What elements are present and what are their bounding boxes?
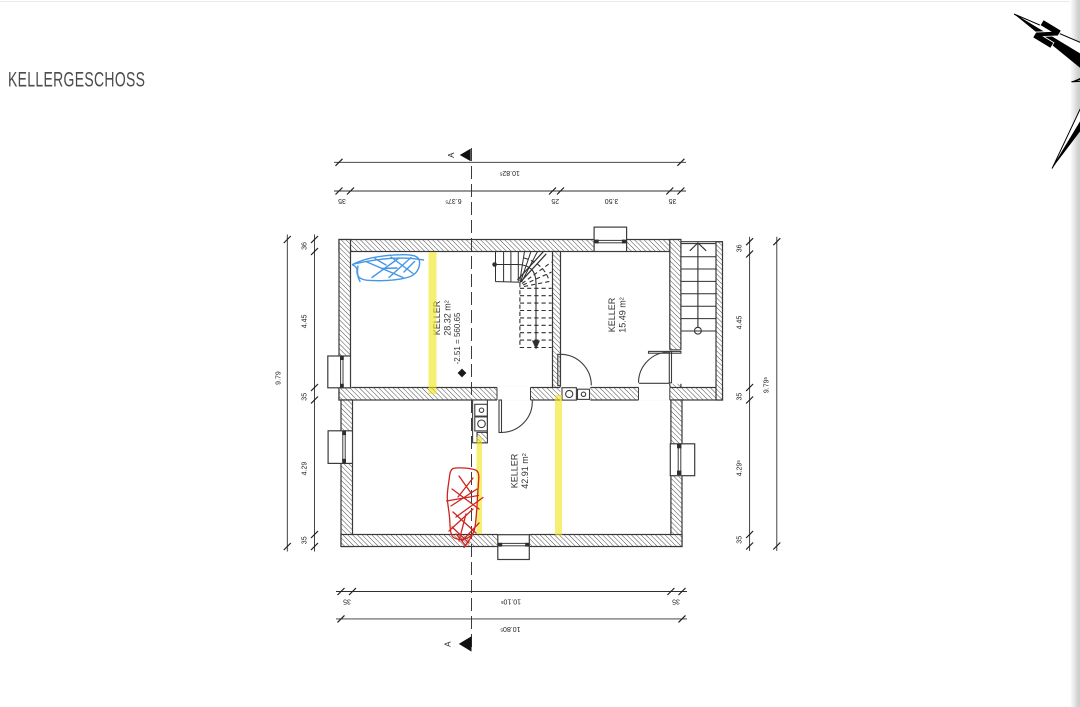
svg-text:4.29: 4.29 (302, 462, 309, 476)
svg-text:10.805: 10.805 (500, 625, 521, 633)
svg-text:42.91 m2: 42.91 m2 (520, 453, 530, 489)
svg-text:KELLER: KELLER (607, 297, 617, 332)
svg-text:35: 35 (672, 597, 680, 604)
svg-text:35: 35 (338, 197, 346, 204)
svg-text:3.50: 3.50 (605, 197, 619, 204)
svg-text:35: 35 (302, 536, 309, 544)
svg-text:-2.51 = 560.65: -2.51 = 560.65 (453, 312, 462, 364)
svg-text:15.49 m2: 15.49 m2 (618, 297, 628, 333)
svg-text:A: A (444, 641, 453, 647)
svg-text:A: A (447, 152, 456, 158)
svg-text:35: 35 (669, 197, 677, 204)
svg-text:KELLERGESCHOSS: KELLERGESCHOSS (8, 68, 145, 92)
svg-text:10.825: 10.825 (499, 169, 520, 177)
svg-text:4.45: 4.45 (302, 314, 309, 328)
svg-text:10.105: 10.105 (501, 597, 522, 605)
svg-text:25: 25 (551, 197, 559, 204)
svg-text:4.45: 4.45 (737, 316, 744, 330)
svg-text:35: 35 (737, 393, 744, 401)
svg-text:KELLER: KELLER (510, 453, 520, 488)
svg-text:9.79: 9.79 (276, 371, 283, 385)
svg-text:36: 36 (302, 242, 309, 250)
svg-text:35: 35 (737, 536, 744, 544)
svg-text:35: 35 (343, 597, 351, 604)
svg-text:28.32 m2: 28.32 m2 (443, 300, 453, 336)
svg-text:36: 36 (737, 244, 744, 252)
svg-text:35: 35 (302, 393, 309, 401)
